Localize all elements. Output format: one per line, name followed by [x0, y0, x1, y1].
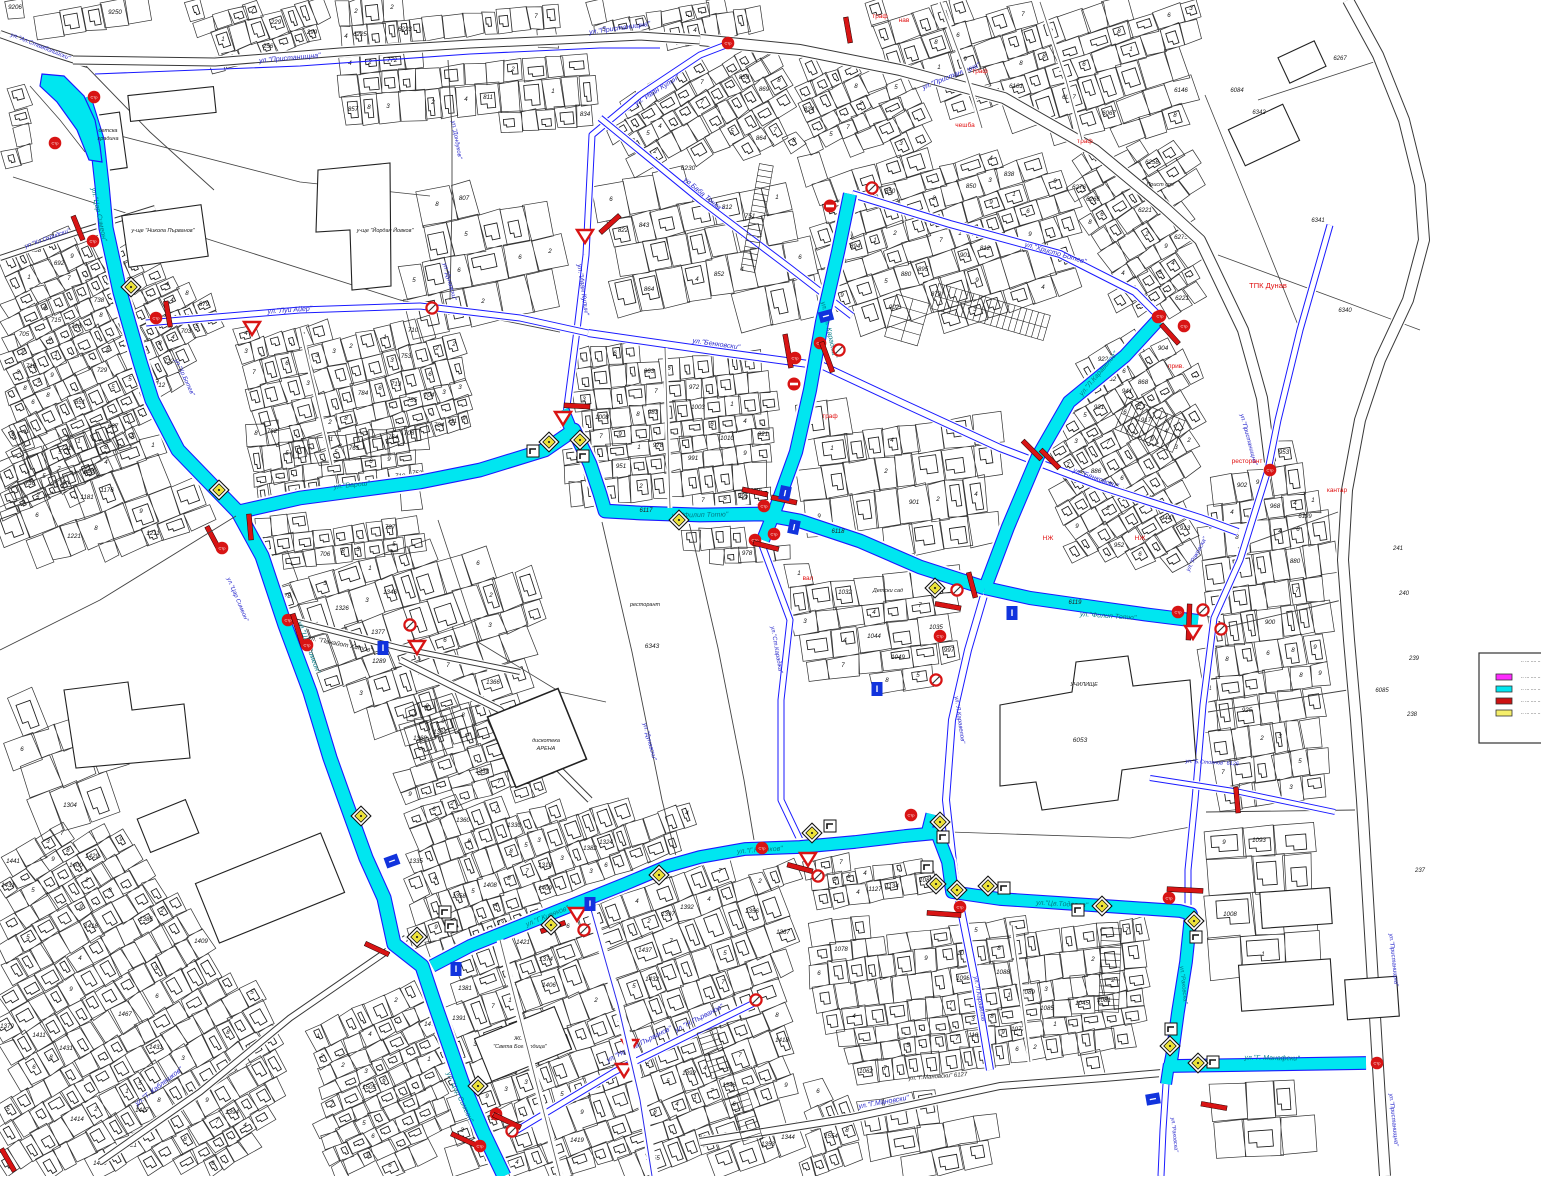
svg-text:1304: 1304	[63, 802, 77, 809]
svg-text:1088: 1088	[996, 969, 1010, 976]
svg-text:6067: 6067	[1102, 110, 1116, 117]
svg-text:1346: 1346	[383, 589, 397, 596]
svg-text:751: 751	[745, 213, 756, 220]
svg-text:2: 2	[340, 1062, 345, 1069]
svg-text:3: 3	[1074, 438, 1078, 445]
svg-text:1379: 1379	[0, 1023, 14, 1030]
svg-text:822: 822	[618, 227, 629, 234]
svg-text:траф: траф	[872, 13, 888, 20]
svg-text:7: 7	[738, 1052, 742, 1059]
svg-text:7: 7	[654, 388, 658, 395]
svg-text:3: 3	[803, 618, 807, 625]
svg-text:968: 968	[1270, 503, 1281, 510]
svg-text:9: 9	[1075, 523, 1079, 530]
svg-text:2: 2	[892, 230, 897, 237]
svg-text:900: 900	[1265, 619, 1276, 626]
svg-text:4: 4	[43, 304, 47, 311]
svg-text:1127: 1127	[868, 886, 882, 893]
svg-text:6221: 6221	[1175, 295, 1189, 302]
svg-text:4: 4	[890, 437, 894, 444]
svg-text:траф: траф	[972, 68, 988, 75]
svg-text:1008: 1008	[1223, 911, 1237, 918]
svg-text:2: 2	[1105, 505, 1110, 512]
svg-text:3: 3	[356, 546, 360, 553]
svg-text:2: 2	[348, 343, 353, 350]
svg-text:7: 7	[1125, 927, 1129, 934]
svg-text:1: 1	[27, 274, 30, 281]
svg-text:1062: 1062	[859, 1068, 873, 1075]
svg-text:1: 1	[873, 237, 876, 244]
svg-text:9: 9	[21, 348, 25, 355]
svg-text:6053: 6053	[1073, 737, 1088, 744]
svg-text:1431: 1431	[59, 1045, 73, 1052]
svg-text:2: 2	[159, 907, 164, 914]
svg-text:7: 7	[710, 1088, 714, 1095]
svg-text:7: 7	[1295, 587, 1299, 594]
svg-text:3: 3	[244, 348, 248, 355]
svg-text:9206: 9206	[8, 4, 22, 11]
svg-text:4: 4	[989, 155, 993, 162]
svg-text:2: 2	[646, 918, 651, 925]
svg-text:4: 4	[695, 276, 699, 283]
svg-text:3: 3	[971, 1016, 975, 1023]
svg-text:вал: вал	[803, 575, 814, 582]
svg-text:5: 5	[1083, 412, 1087, 419]
svg-text:2: 2	[1259, 735, 1264, 742]
svg-text:4: 4	[707, 896, 711, 903]
svg-text:7: 7	[497, 778, 501, 785]
svg-text:901: 901	[960, 252, 970, 259]
svg-text:1: 1	[427, 1056, 430, 1063]
svg-text:4: 4	[1121, 270, 1125, 277]
svg-text:1: 1	[937, 64, 940, 71]
svg-text:4: 4	[1230, 509, 1234, 516]
svg-text:9: 9	[485, 1093, 489, 1100]
svg-text:7: 7	[773, 127, 777, 134]
svg-text:8: 8	[845, 1127, 849, 1134]
svg-text:Стр: Стр	[792, 356, 800, 361]
svg-text:2: 2	[451, 341, 456, 348]
svg-text:5: 5	[730, 128, 734, 135]
svg-text:2: 2	[434, 345, 439, 352]
svg-text:8: 8	[1019, 60, 1023, 67]
svg-text:1367: 1367	[776, 929, 790, 936]
svg-text:9: 9	[989, 199, 993, 206]
svg-text:6119: 6119	[1069, 600, 1083, 606]
svg-text:4: 4	[1293, 500, 1297, 507]
svg-text:5: 5	[138, 1080, 142, 1087]
svg-text:6: 6	[609, 196, 613, 203]
svg-text:8: 8	[777, 77, 781, 84]
svg-text:692: 692	[54, 260, 65, 267]
svg-text:5: 5	[1298, 758, 1302, 765]
svg-text:868: 868	[1138, 379, 1149, 386]
svg-text:1409: 1409	[194, 938, 208, 945]
svg-text:8: 8	[104, 444, 108, 451]
svg-text:2: 2	[1110, 977, 1115, 984]
svg-text:7: 7	[67, 275, 71, 282]
svg-text:6: 6	[35, 512, 39, 519]
svg-text:1: 1	[151, 442, 154, 449]
svg-text:256: 256	[262, 43, 274, 50]
svg-text:8: 8	[66, 847, 70, 854]
svg-text:2: 2	[84, 877, 89, 884]
svg-text:1408: 1408	[483, 882, 497, 889]
svg-text:852: 852	[714, 271, 725, 278]
svg-text:1289: 1289	[372, 658, 386, 665]
svg-text:1313: 1313	[538, 862, 552, 869]
svg-text:4: 4	[170, 297, 174, 304]
svg-text:921: 921	[758, 431, 768, 438]
svg-text:8: 8	[636, 411, 640, 418]
svg-text:2: 2	[367, 59, 372, 66]
svg-text:729: 729	[97, 367, 108, 374]
svg-text:Стр: Стр	[957, 905, 965, 910]
svg-text:6: 6	[378, 385, 382, 392]
svg-text:5: 5	[884, 278, 888, 285]
svg-text:997: 997	[944, 647, 955, 654]
svg-text:8: 8	[99, 312, 103, 319]
svg-text:1429: 1429	[85, 853, 99, 860]
svg-text:4: 4	[852, 1013, 856, 1020]
svg-text:895: 895	[918, 266, 929, 273]
svg-text:8: 8	[344, 415, 348, 422]
svg-text:3: 3	[582, 396, 586, 403]
svg-text:1098: 1098	[956, 975, 970, 982]
svg-text:Стр: Стр	[219, 546, 227, 551]
svg-text:1: 1	[77, 438, 80, 445]
svg-text:944: 944	[1161, 515, 1172, 522]
svg-text:7: 7	[839, 859, 843, 866]
svg-text:3: 3	[390, 357, 394, 364]
svg-text:5: 5	[464, 231, 468, 238]
svg-text:9: 9	[37, 378, 41, 385]
svg-text:850: 850	[966, 183, 977, 190]
svg-text:6266: 6266	[1086, 196, 1100, 203]
svg-text:6199: 6199	[1298, 514, 1312, 520]
svg-text:8: 8	[467, 838, 471, 845]
svg-text:784: 784	[358, 390, 369, 397]
svg-text:1: 1	[1311, 497, 1314, 504]
svg-text:978: 978	[742, 550, 753, 557]
svg-text:8: 8	[185, 290, 189, 297]
svg-text:679: 679	[199, 301, 210, 308]
svg-text:834: 834	[580, 111, 591, 118]
svg-text:АРЕНА: АРЕНА	[536, 746, 556, 752]
svg-text:6: 6	[20, 746, 24, 753]
svg-text:у-ще "Йордан Йовков": у-ще "Йордан Йовков"	[356, 226, 415, 234]
svg-text:1358: 1358	[452, 893, 466, 900]
svg-text:6084: 6084	[1230, 88, 1244, 94]
svg-text:7: 7	[669, 938, 673, 945]
svg-text:1437: 1437	[638, 947, 652, 954]
svg-text:Стр: Стр	[1181, 324, 1189, 329]
svg-text:7: 7	[525, 868, 529, 875]
svg-text:1085: 1085	[1040, 1005, 1054, 1012]
svg-text:7: 7	[215, 1118, 219, 1125]
svg-text:5: 5	[894, 84, 898, 91]
svg-text:869: 869	[759, 86, 770, 93]
svg-text:4: 4	[1041, 284, 1045, 291]
svg-text:1: 1	[551, 88, 554, 95]
svg-text:9: 9	[1318, 670, 1322, 677]
svg-text:952: 952	[1114, 542, 1125, 549]
svg-text:2: 2	[935, 496, 940, 503]
svg-text:8: 8	[46, 392, 50, 399]
svg-text:4: 4	[1278, 528, 1282, 535]
svg-text:УЧИЛИЩЕ: УЧИЛИЩЕ	[1069, 682, 1098, 688]
svg-text:7: 7	[701, 497, 705, 504]
svg-text:850: 850	[885, 188, 896, 195]
svg-text:1414: 1414	[70, 1116, 84, 1123]
svg-text:4: 4	[171, 334, 175, 341]
svg-text:Детски сад: Детски сад	[872, 588, 903, 594]
svg-text:5: 5	[285, 450, 289, 457]
svg-text:1418: 1418	[84, 923, 98, 930]
svg-text:3: 3	[1044, 986, 1048, 993]
svg-text:239: 239	[1408, 656, 1420, 662]
svg-text:7: 7	[495, 805, 499, 812]
svg-text:1554: 1554	[824, 1133, 838, 1140]
svg-text:738: 738	[94, 297, 105, 304]
svg-text:5: 5	[362, 1120, 366, 1127]
svg-text:2: 2	[757, 878, 762, 885]
svg-text:.. ... .... ...: .. ... .... ...	[1521, 698, 1541, 704]
svg-text:9: 9	[743, 450, 747, 457]
svg-text:972: 972	[689, 384, 700, 391]
svg-text:2: 2	[510, 66, 515, 73]
svg-text:1353: 1353	[761, 1141, 775, 1148]
svg-text:4: 4	[78, 955, 82, 962]
svg-text:6: 6	[604, 862, 608, 869]
svg-text:9: 9	[1222, 839, 1226, 846]
svg-text:894: 894	[850, 243, 861, 250]
svg-text:2: 2	[93, 1106, 98, 1113]
svg-text:8: 8	[108, 887, 112, 894]
svg-text:Стр: Стр	[285, 618, 293, 623]
svg-text:1344: 1344	[781, 1134, 795, 1141]
svg-text:6: 6	[106, 346, 110, 353]
svg-text:I: I	[382, 643, 385, 653]
svg-text:6: 6	[1167, 12, 1171, 19]
svg-text:1010: 1010	[720, 435, 734, 442]
svg-text:8: 8	[885, 677, 889, 684]
svg-text:3: 3	[46, 838, 50, 845]
svg-text:4: 4	[974, 491, 978, 498]
svg-text:6: 6	[1266, 650, 1270, 657]
svg-text:4: 4	[464, 96, 468, 103]
svg-text:2: 2	[327, 419, 332, 426]
svg-text:1359: 1359	[475, 768, 489, 775]
svg-text:Стр: Стр	[90, 239, 98, 244]
svg-text:1505: 1505	[362, 1084, 376, 1091]
svg-text:3: 3	[130, 432, 134, 439]
svg-text:Стр: Стр	[937, 634, 945, 639]
svg-text:5: 5	[392, 541, 396, 548]
svg-text:.. ... .... ...: .. ... .... ...	[1521, 674, 1541, 680]
svg-text:1346: 1346	[722, 1082, 736, 1089]
svg-text:1382: 1382	[583, 845, 597, 852]
svg-text:градина: градина	[97, 136, 118, 142]
svg-text:4: 4	[843, 637, 847, 644]
svg-text:6: 6	[816, 1088, 820, 1095]
svg-text:5: 5	[111, 384, 115, 391]
svg-text:3: 3	[589, 868, 593, 875]
svg-text:9: 9	[833, 876, 837, 883]
svg-text:7: 7	[949, 1000, 953, 1007]
svg-text:8: 8	[183, 1136, 187, 1143]
svg-text:4: 4	[243, 1122, 247, 1129]
svg-text:1467: 1467	[118, 1011, 132, 1018]
svg-text:Стр: Стр	[52, 141, 60, 146]
svg-text:7: 7	[955, 1035, 959, 1042]
svg-text:6: 6	[428, 371, 432, 378]
svg-text:6: 6	[457, 267, 461, 274]
svg-text:995: 995	[738, 493, 749, 500]
svg-text:1045: 1045	[1075, 1000, 1089, 1007]
svg-text:1221: 1221	[67, 533, 81, 540]
svg-text:I: I	[876, 684, 879, 694]
svg-text:8: 8	[507, 875, 511, 882]
svg-text:Стр: Стр	[1175, 610, 1183, 615]
svg-text:1411: 1411	[32, 1032, 45, 1039]
svg-text:4: 4	[104, 459, 108, 466]
svg-text:4: 4	[675, 1101, 679, 1108]
svg-text:5: 5	[646, 130, 650, 137]
svg-text:1: 1	[368, 565, 371, 572]
svg-text:6: 6	[956, 32, 960, 39]
svg-text:8: 8	[367, 104, 371, 111]
svg-text:8: 8	[1042, 53, 1046, 60]
svg-text:1366: 1366	[486, 679, 500, 686]
svg-text:2: 2	[638, 483, 643, 490]
svg-text:7: 7	[1221, 769, 1225, 776]
svg-text:у-ще "Никола Първанов": у-ще "Никола Първанов"	[130, 228, 195, 234]
svg-text:8: 8	[338, 443, 342, 450]
svg-text:2: 2	[1090, 956, 1095, 963]
svg-text:4: 4	[494, 902, 498, 909]
svg-text:7: 7	[918, 602, 922, 609]
svg-text:991: 991	[688, 455, 698, 462]
svg-text:6343: 6343	[645, 643, 660, 650]
svg-text:706: 706	[320, 551, 331, 558]
svg-text:2: 2	[389, 4, 394, 11]
svg-text:3: 3	[524, 1079, 528, 1086]
svg-text:762: 762	[267, 428, 278, 435]
svg-text:Стр: Стр	[477, 1144, 485, 1149]
svg-text:8: 8	[1173, 112, 1177, 119]
svg-text:8: 8	[997, 945, 1001, 952]
svg-text:7: 7	[846, 124, 850, 131]
svg-text:3: 3	[988, 177, 992, 184]
svg-text:712: 712	[164, 358, 175, 365]
svg-text:ресторант: ресторант	[1232, 458, 1263, 465]
svg-text:2: 2	[883, 468, 888, 475]
svg-text:6: 6	[211, 1160, 215, 1167]
svg-text:1374: 1374	[539, 956, 553, 963]
svg-text:1: 1	[54, 351, 57, 358]
svg-text:6: 6	[798, 254, 802, 261]
svg-text:3: 3	[181, 1055, 185, 1062]
svg-text:1406: 1406	[542, 982, 556, 989]
svg-text:5: 5	[524, 842, 528, 849]
svg-text:651: 651	[75, 399, 85, 406]
svg-text:4: 4	[743, 418, 747, 425]
svg-text:1397: 1397	[661, 911, 675, 918]
svg-text:838: 838	[1004, 171, 1015, 178]
svg-text:4: 4	[635, 898, 639, 905]
svg-text:3: 3	[323, 580, 327, 587]
svg-text:931: 931	[1094, 404, 1104, 411]
svg-text:3: 3	[154, 965, 158, 972]
svg-text:6225: 6225	[353, 31, 367, 38]
svg-text:951: 951	[616, 463, 626, 470]
svg-text:прив.: прив.	[1168, 363, 1184, 370]
svg-text:2: 2	[393, 997, 398, 1004]
svg-text:Стр: Стр	[759, 846, 767, 851]
svg-text:3: 3	[537, 837, 541, 844]
svg-text:6: 6	[443, 637, 447, 644]
svg-text:5: 5	[334, 449, 338, 456]
svg-text:7: 7	[491, 1003, 495, 1010]
svg-text:8: 8	[775, 1012, 779, 1019]
svg-text:241: 241	[1392, 546, 1403, 552]
svg-text:6: 6	[817, 970, 821, 977]
svg-text:8: 8	[254, 430, 258, 437]
svg-text:1392: 1392	[680, 904, 694, 911]
svg-text:5: 5	[666, 1078, 670, 1085]
svg-text:9250: 9250	[108, 9, 122, 16]
svg-text:237: 237	[1414, 868, 1426, 874]
svg-text:1176: 1176	[100, 487, 114, 494]
svg-text:8: 8	[1225, 656, 1229, 663]
svg-text:7: 7	[446, 662, 450, 669]
svg-text:8: 8	[1117, 28, 1121, 35]
svg-text:2: 2	[488, 592, 493, 599]
svg-text:1356: 1356	[745, 908, 759, 915]
svg-text:7: 7	[841, 662, 845, 669]
svg-text:9: 9	[366, 1152, 370, 1159]
svg-text:3: 3	[332, 348, 336, 355]
svg-text:6: 6	[1120, 475, 1124, 482]
svg-text:6: 6	[382, 1077, 386, 1084]
svg-text:6: 6	[371, 1133, 375, 1140]
svg-text:8: 8	[49, 1054, 53, 1061]
svg-text:834: 834	[804, 106, 815, 113]
svg-text:1360: 1360	[456, 817, 470, 824]
svg-text:3: 3	[386, 103, 390, 110]
svg-text:5: 5	[906, 1042, 910, 1049]
svg-text:5: 5	[632, 983, 636, 990]
svg-text:1335: 1335	[409, 858, 423, 865]
svg-text:НЖ: НЖ	[1135, 535, 1146, 542]
svg-text:704: 704	[424, 392, 435, 399]
svg-text:6: 6	[710, 421, 714, 428]
svg-text:7: 7	[883, 1065, 887, 1072]
svg-text:9: 9	[1164, 243, 1168, 250]
svg-text:5: 5	[128, 376, 132, 383]
svg-text:9: 9	[441, 718, 445, 725]
svg-text:1409: 1409	[538, 885, 552, 892]
svg-text:715: 715	[51, 317, 62, 324]
svg-text:1400: 1400	[69, 862, 83, 869]
svg-text:229: 229	[270, 19, 282, 26]
svg-text:2: 2	[480, 298, 485, 305]
svg-text:1: 1	[637, 444, 640, 451]
svg-text:3: 3	[488, 622, 492, 629]
svg-text:7: 7	[939, 237, 943, 244]
svg-text:2: 2	[449, 800, 454, 807]
